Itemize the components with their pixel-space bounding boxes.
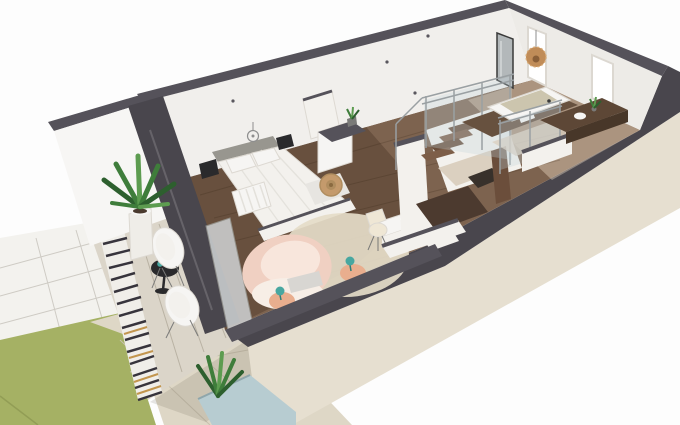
floorplan-render [0, 0, 680, 425]
vanity-sink [574, 113, 586, 120]
palm-pot [129, 208, 153, 260]
lamp-stem [350, 265, 351, 271]
rattan-pendant-opening [533, 56, 540, 63]
palm-leaf [138, 156, 140, 207]
wall-socket [385, 60, 388, 63]
teal-lamp-1 [276, 287, 285, 296]
wall-socket [413, 91, 416, 94]
wall-socket [426, 34, 429, 37]
wall-socket [231, 99, 234, 102]
lamp-stem [280, 295, 281, 300]
render-canvas [0, 0, 680, 425]
desk-chair-seat [369, 223, 387, 237]
stair-side-wall [396, 137, 430, 245]
pendant-bulb [252, 135, 255, 138]
teal-lamp-2 [346, 257, 355, 266]
rattan-hoop-center [329, 183, 333, 187]
tub-faucet [547, 99, 551, 103]
